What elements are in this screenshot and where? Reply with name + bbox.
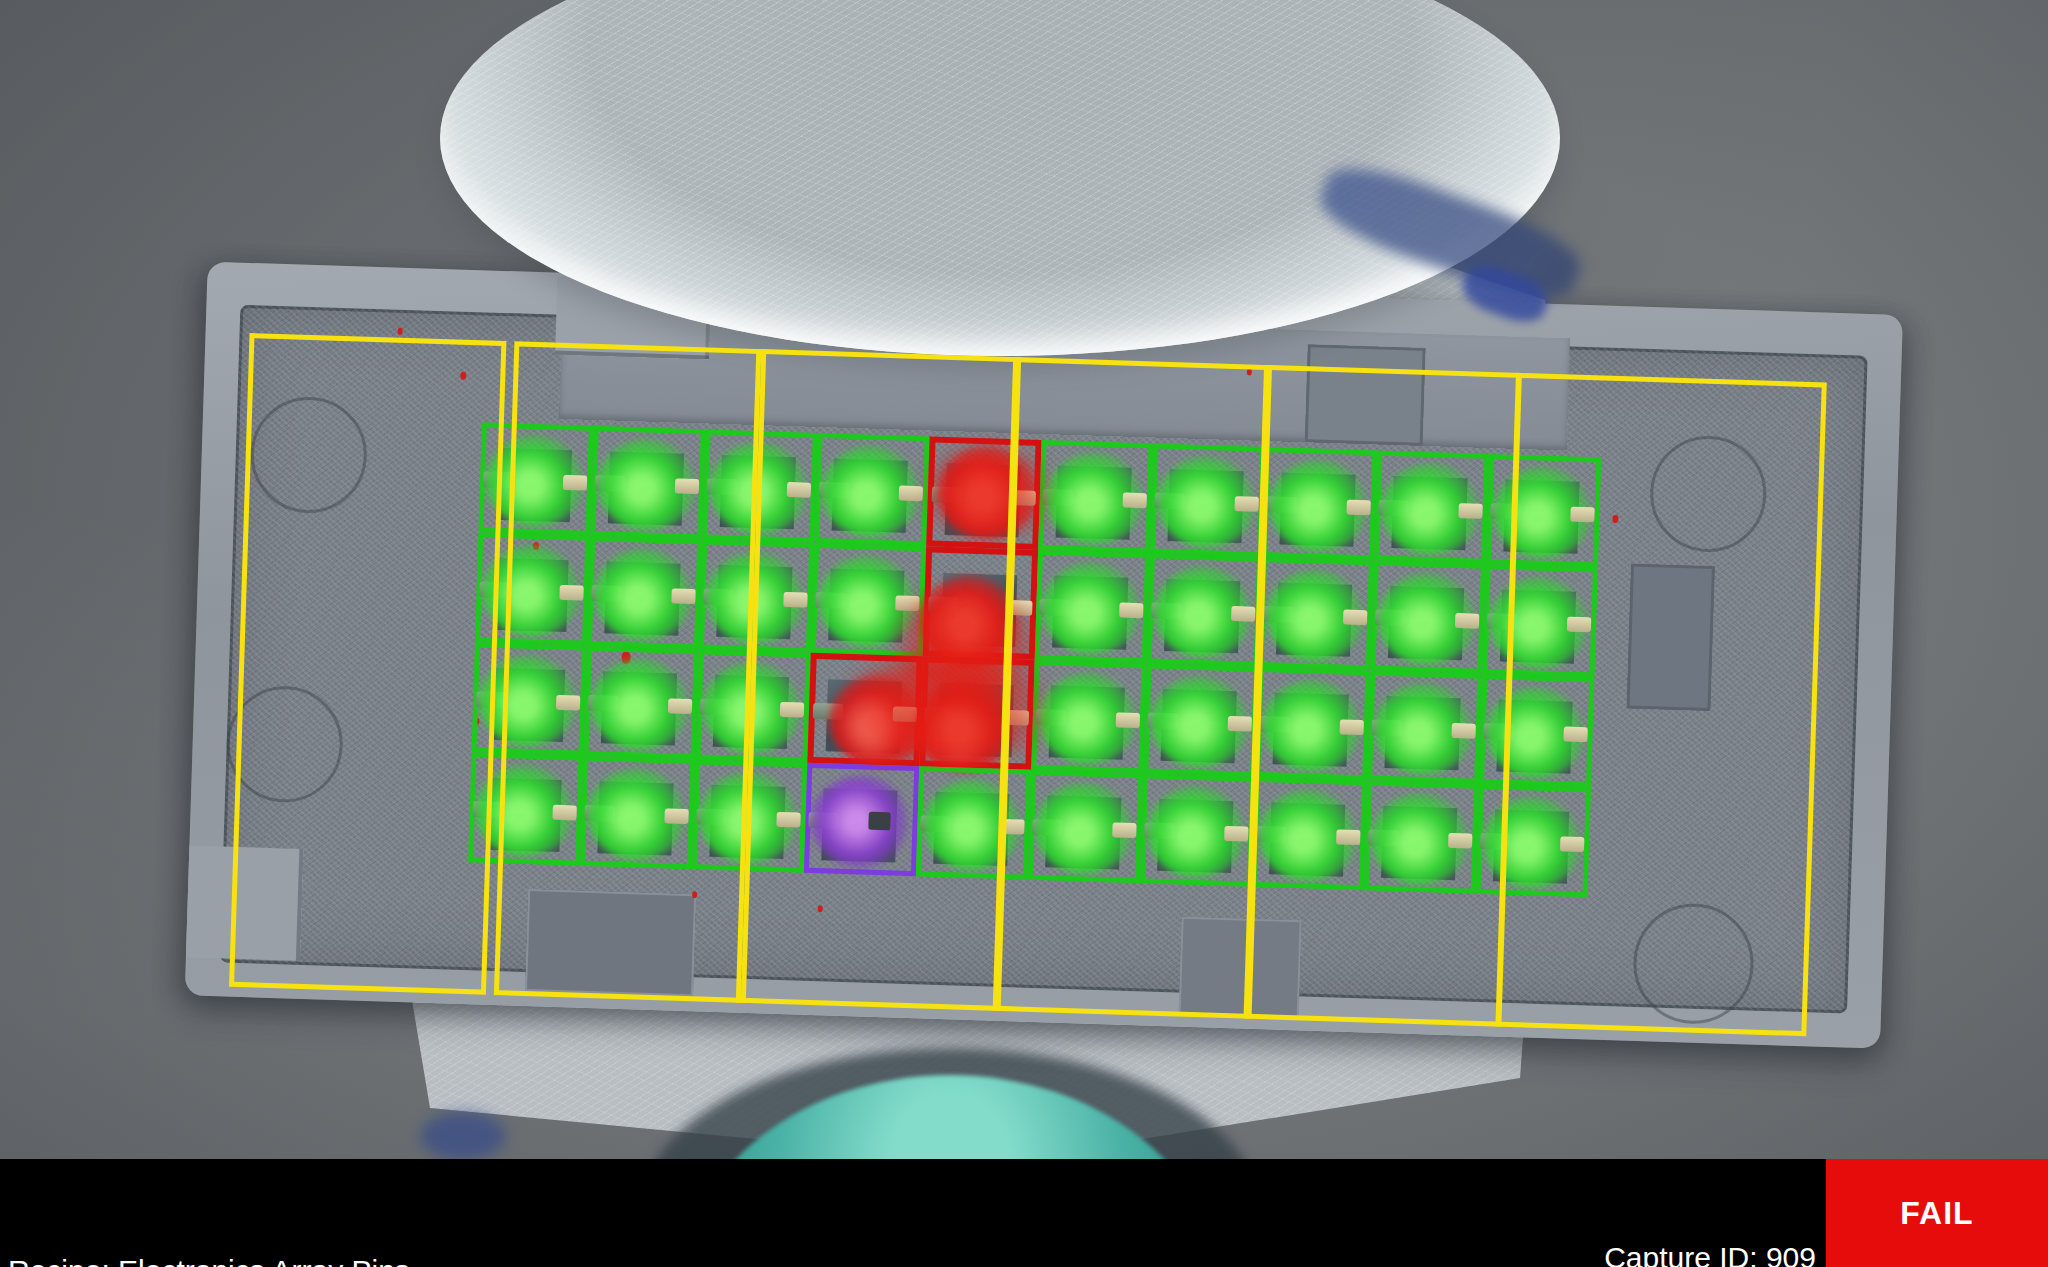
status-left-column: Recipe: Electronics Array Pins Notes: — [8, 1161, 410, 1267]
inspection-region-box-6 — [1495, 373, 1826, 1036]
photo-canvas — [0, 0, 2048, 1159]
status-right-column: Capture ID: 909 Trigger ID: 2 Capture Ti… — [1129, 1163, 1816, 1267]
inspection-region-box-5 — [1244, 365, 1522, 1027]
result-badge: FAIL — [1826, 1159, 2048, 1267]
rotated-scene — [0, 0, 2048, 1159]
recipe-label: Recipe: Electronics Array Pins — [8, 1249, 410, 1267]
inspection-region-box-3 — [736, 349, 1021, 1011]
status-bar: Recipe: Electronics Array Pins Notes: Ca… — [0, 1159, 2048, 1267]
capture-id-label: Capture ID: 909 — [1129, 1239, 1816, 1267]
inspection-region-box-2 — [494, 341, 766, 1003]
inspection-region-box-1 — [229, 333, 506, 995]
inspection-viewer: Recipe: Electronics Array Pins Notes: Ca… — [0, 0, 2048, 1267]
inspection-region-box-4 — [993, 357, 1272, 1019]
